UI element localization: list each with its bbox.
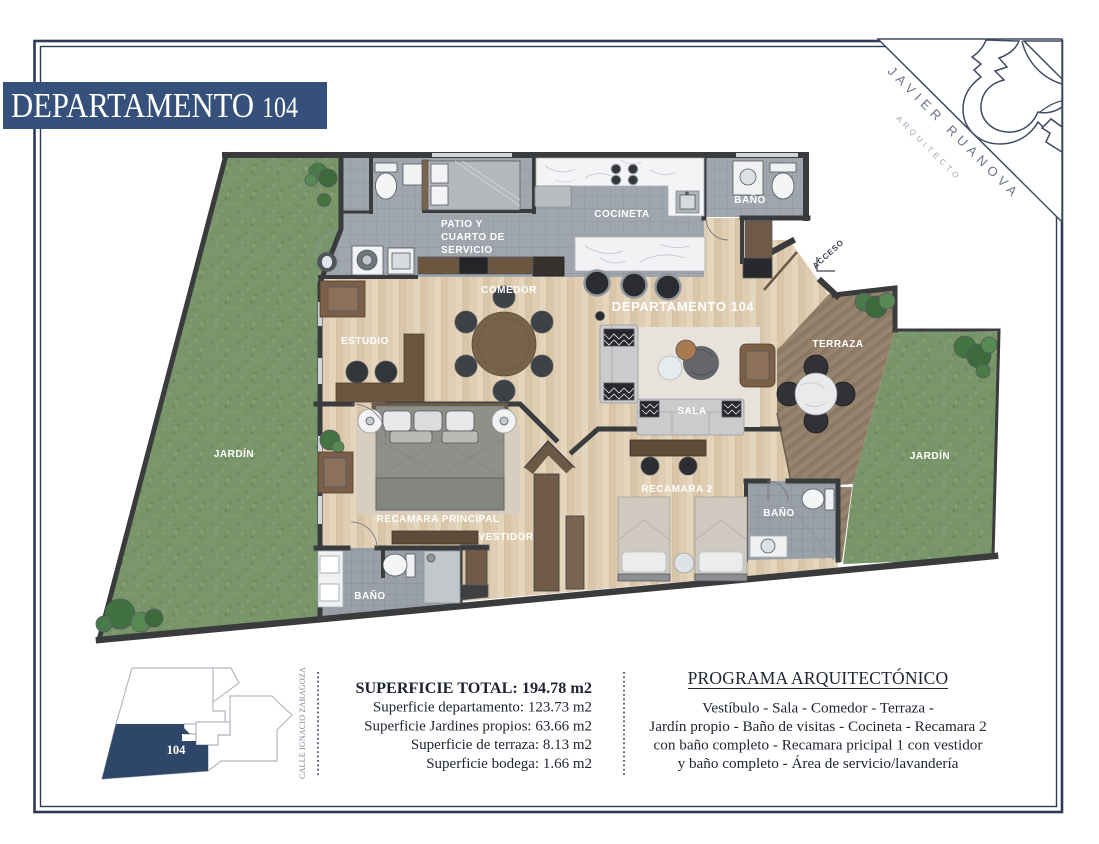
- svg-text:TERRAZA: TERRAZA: [812, 339, 863, 350]
- svg-text:Superficie departamento: 123.7: Superficie departamento: 123.73 m2: [373, 700, 592, 716]
- svg-text:RECAMARA 2: RECAMARA 2: [641, 484, 712, 495]
- svg-text:PROGRAMA ARQUITECTÓNICO: PROGRAMA ARQUITECTÓNICO: [688, 668, 949, 688]
- svg-text:DEPARTAMENTO: DEPARTAMENTO: [11, 86, 254, 125]
- svg-text:Superficie bodega: 1.66 m2: Superficie bodega: 1.66 m2: [426, 756, 592, 772]
- svg-text:SERVICIO: SERVICIO: [441, 245, 493, 256]
- svg-text:VESTIDOR: VESTIDOR: [478, 532, 533, 543]
- svg-text:104: 104: [167, 743, 187, 757]
- svg-text:SUPERFICIE TOTAL: 194.78 m2: SUPERFICIE TOTAL: 194.78 m2: [355, 679, 592, 697]
- svg-text:COMEDOR: COMEDOR: [481, 285, 537, 296]
- svg-text:y baño completo - Área de serv: y baño completo - Área de servicio/lavan…: [678, 755, 959, 772]
- svg-text:Jardín propio - Baño de visita: Jardín propio - Baño de visitas - Cocine…: [649, 718, 986, 735]
- svg-text:JARDÍN: JARDÍN: [910, 449, 950, 462]
- svg-text:PATIO Y: PATIO Y: [441, 219, 483, 230]
- svg-text:RECAMARA PRINCIPAL: RECAMARA PRINCIPAL: [377, 514, 500, 525]
- svg-text:COCINETA: COCINETA: [594, 209, 649, 220]
- svg-text:104: 104: [262, 91, 298, 124]
- svg-text:BAÑO: BAÑO: [763, 506, 794, 519]
- svg-text:Superficie de terraza: 8.13 m2: Superficie de terraza: 8.13 m2: [411, 737, 592, 753]
- svg-text:Superficie Jardines propios: 6: Superficie Jardines propios: 63.66 m2: [364, 719, 592, 735]
- svg-text:con baño completo - Recamara p: con baño completo - Recamara pricipal 1 …: [654, 737, 983, 754]
- svg-text:BAÑO: BAÑO: [734, 193, 765, 206]
- svg-text:ESTUDIO: ESTUDIO: [341, 336, 389, 347]
- svg-text:JARDÍN: JARDÍN: [214, 447, 254, 460]
- svg-text:BAÑO: BAÑO: [354, 589, 385, 602]
- svg-text:CALLE IGNACIO ZARAGOZA: CALLE IGNACIO ZARAGOZA: [298, 667, 307, 779]
- svg-text:CUARTO DE: CUARTO DE: [441, 232, 505, 243]
- svg-text:Vestíbulo - Sala - Comedor - T: Vestíbulo - Sala - Comedor - Terraza -: [702, 700, 934, 717]
- svg-text:DEPARTAMENTO 104: DEPARTAMENTO 104: [612, 299, 755, 314]
- svg-text:SALA: SALA: [677, 406, 706, 417]
